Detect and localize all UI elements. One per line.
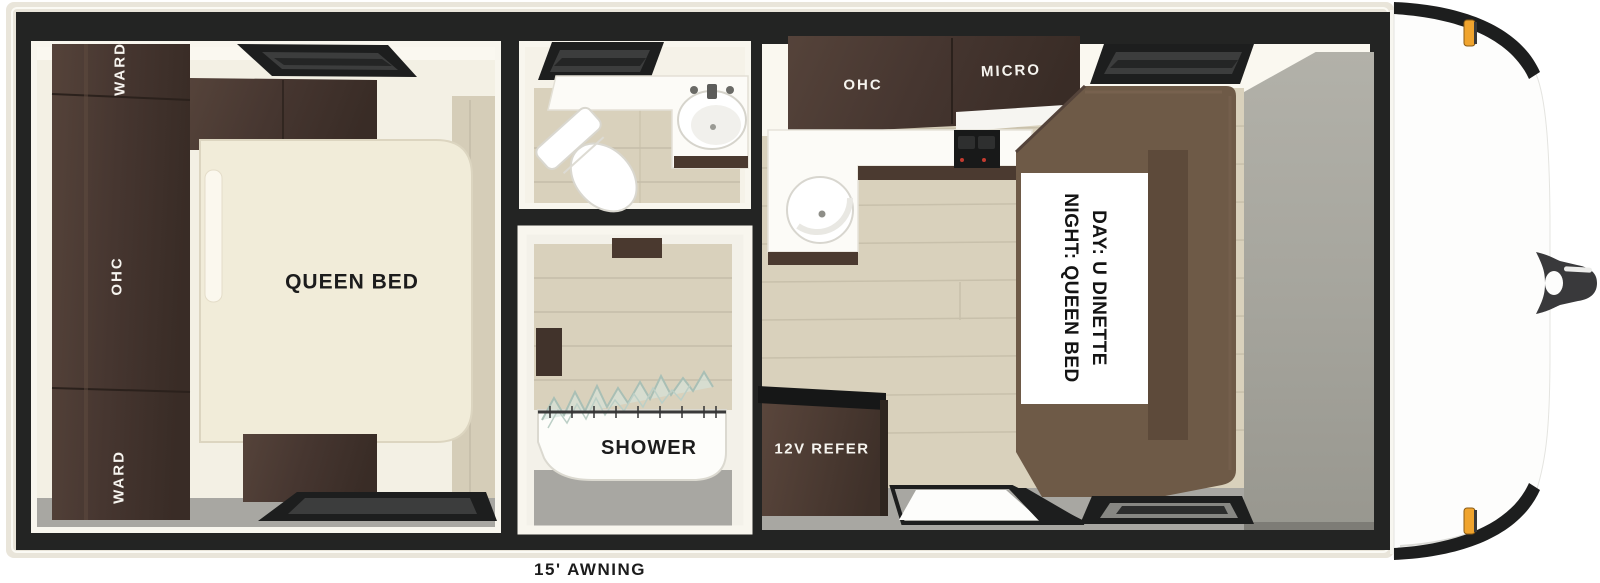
awning-label: 15' AWNING	[534, 560, 646, 580]
kitchen-left-wall-face	[762, 44, 792, 136]
kitchen-sink	[787, 177, 853, 243]
bathroom	[522, 42, 748, 229]
marker-light-bottom	[1464, 508, 1475, 534]
bedroom-ohc-label: OHC	[110, 256, 125, 295]
front-wall-seam	[1390, 10, 1394, 554]
shower-room	[522, 230, 748, 530]
marker-light-top	[1464, 20, 1475, 46]
kitchen-ohc-label: OHC	[843, 78, 882, 93]
wardrobe-top-label: WARD	[113, 42, 128, 96]
gray-wall	[1244, 52, 1374, 530]
bedroom-window-bottom	[258, 492, 497, 521]
dinette-seat-shadow	[1148, 150, 1188, 440]
kitchen-skylight	[1090, 44, 1254, 84]
faucet-icon	[707, 84, 717, 99]
entry-step-window	[1080, 496, 1254, 524]
wardrobe-bottom-label: WARD	[112, 450, 127, 504]
trailer-nose	[1394, 4, 1550, 558]
trailer-front	[1390, 2, 1597, 560]
pillow	[205, 170, 222, 302]
floorplan-graphic	[0, 0, 1600, 583]
queen-bed-label: QUEEN BED	[285, 272, 419, 293]
shower-label: SHOWER	[601, 438, 697, 458]
cooktop	[954, 130, 1000, 168]
dinette-label: DAY: U DINETTE NIGHT: QUEEN BED	[1056, 193, 1112, 383]
dinette-night-label: NIGHT: QUEEN BED	[1056, 193, 1084, 383]
floorplan-canvas: WARD OHC WARD QUEEN BED OHC MICRO 12V RE…	[0, 0, 1600, 583]
nightstand	[243, 434, 377, 502]
hitch	[1536, 252, 1597, 314]
counter-edge-top	[858, 166, 1032, 180]
dinette-day-label: DAY: U DINETTE	[1084, 193, 1112, 383]
counter-edge-left	[768, 252, 858, 265]
bathroom-skylight	[538, 42, 664, 80]
bedroom	[34, 44, 498, 530]
vanity-cabinet-edge	[674, 156, 748, 168]
micro-label: MICRO	[981, 62, 1041, 79]
refer-label: 12V REFER	[774, 442, 869, 457]
shower-shelf	[612, 238, 662, 258]
shower-cabinet-panel	[536, 328, 562, 376]
